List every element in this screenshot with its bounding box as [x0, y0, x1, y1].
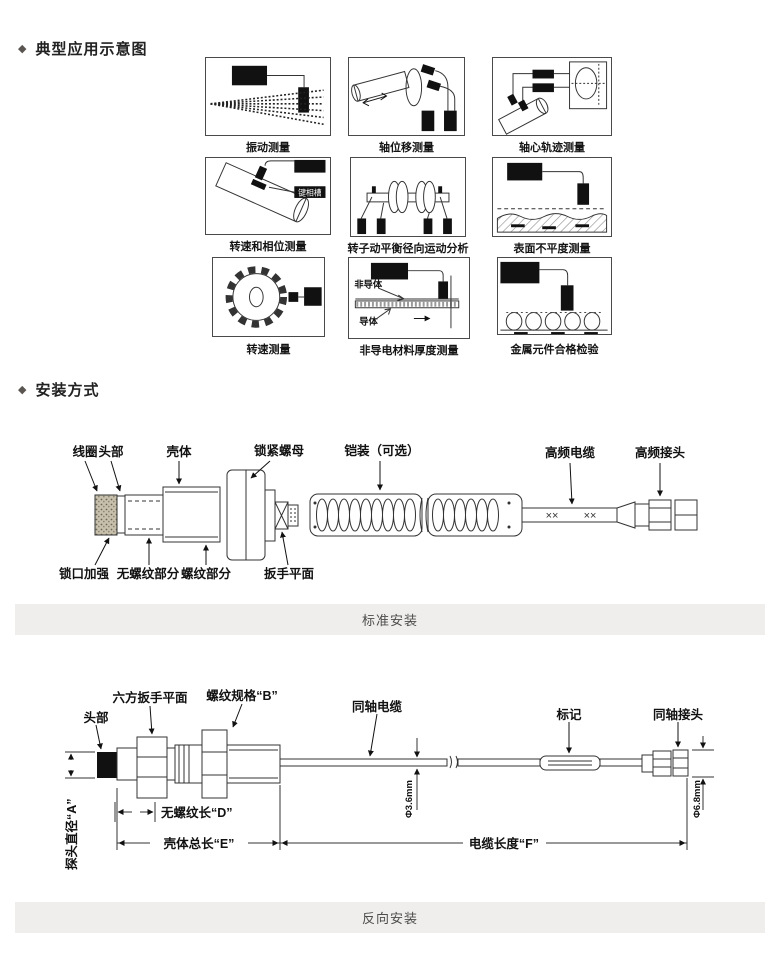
- label-head: 头部: [98, 444, 124, 459]
- app-caption-metal-inspection: 金属元件合格检验: [492, 341, 617, 357]
- label-wrench-flat: 扳手平面: [264, 566, 315, 581]
- label-hf-cable: 高频电缆: [545, 445, 596, 460]
- label-coax-connector: 同轴接头: [653, 707, 704, 722]
- cable-mark: ××: [584, 510, 597, 522]
- label-hf-connector: 高频接头: [635, 445, 686, 460]
- app-caption-orbit: 轴心轨迹测量: [492, 139, 612, 155]
- probe-icon: [298, 87, 309, 112]
- dim-cable-dia-3-6: Φ3.6mm: [404, 780, 415, 818]
- non-conductor-label: 非导体: [354, 278, 382, 289]
- app-caption-thickness: 非导电材料厚度测量: [344, 342, 474, 358]
- app-caption-surface: 表面不平度测量: [492, 240, 612, 256]
- label-mark: 标记: [555, 707, 582, 722]
- applications-title: 典型应用示意图: [35, 38, 147, 59]
- label-hex-flat: 六方扳手平面: [112, 690, 188, 705]
- app-diagram-orbit: [492, 57, 612, 136]
- dim-unthreaded-D: 无螺纹长“D”: [160, 805, 233, 820]
- instrument-box-icon: [232, 66, 267, 85]
- app-diagram-vibration: [205, 57, 331, 136]
- diamond-bullet-icon: ◆: [18, 383, 27, 396]
- app-diagram-metal-inspection: [497, 257, 612, 335]
- label-head: 头部: [83, 710, 109, 725]
- conductor-label: 导体: [359, 315, 378, 326]
- cable-mark: ××: [546, 510, 559, 522]
- app-caption-gear-speed: 转速测量: [212, 341, 325, 357]
- section-heading-applications: ◆ 典型应用示意图: [18, 38, 147, 59]
- app-caption-rotor-balance: 转子动平衡径向运动分析: [338, 240, 478, 256]
- app-diagram-speed-phase: 键相槽: [205, 157, 331, 235]
- app-caption-axial: 轴位移测量: [348, 139, 465, 155]
- label-lock-reinforce: 锁口加强: [59, 566, 110, 581]
- reverse-install-caption: 反向安装: [362, 908, 418, 927]
- app-caption-speed-phase: 转速和相位测量: [198, 238, 338, 254]
- section-heading-installation: ◆ 安装方式: [18, 379, 99, 400]
- label-threaded: 螺纹部分: [181, 566, 232, 581]
- label-coax-cable: 同轴电缆: [352, 699, 403, 714]
- app-diagram-gear-speed: [212, 257, 325, 337]
- label-coil: 线圈: [72, 444, 97, 459]
- diamond-bullet-icon: ◆: [18, 42, 27, 55]
- datasheet-page: { "sections": { "applications": { "bulle…: [0, 0, 780, 953]
- dim-cable-F: 电缆长度“F”: [469, 836, 539, 851]
- installation-title: 安装方式: [35, 379, 99, 400]
- label-armor: 铠装（可选）: [343, 443, 419, 458]
- caption-bar-reverse: 反向安装: [15, 902, 765, 933]
- keyphasor-slot-label: 键相槽: [298, 188, 322, 198]
- label-unthreaded: 无螺纹部分: [116, 566, 180, 581]
- app-diagram-axial-displacement: [348, 57, 465, 136]
- standard-installation-drawing: ×× ×× 线圈 头部 壳体 锁紧螺母 铠装（可选） 高频电缆 高频接头 锁口加…: [20, 438, 770, 590]
- reverse-installation-drawing: 探头直径“A” 无螺纹长“D” 壳体总长“E” 电缆长度“F” Φ3.6mm: [20, 680, 770, 895]
- app-diagram-surface: [492, 157, 612, 237]
- app-diagram-thickness: 非导体 导体: [348, 257, 470, 339]
- app-diagram-rotor-balance: [350, 157, 466, 237]
- app-caption-vibration: 振动测量: [205, 139, 331, 155]
- label-housing: 壳体: [165, 444, 192, 459]
- standard-install-caption: 标准安装: [362, 610, 418, 629]
- dim-probe-diameter-A: 探头直径“A”: [64, 798, 79, 870]
- label-lock-nut: 锁紧螺母: [254, 443, 305, 458]
- caption-bar-standard: 标准安装: [15, 604, 765, 635]
- label-thread-spec-B: 螺纹规格“B”: [206, 688, 278, 703]
- dim-connector-dia-6-8: Φ6.8mm: [692, 780, 703, 818]
- dim-housing-E: 壳体总长“E”: [163, 836, 235, 851]
